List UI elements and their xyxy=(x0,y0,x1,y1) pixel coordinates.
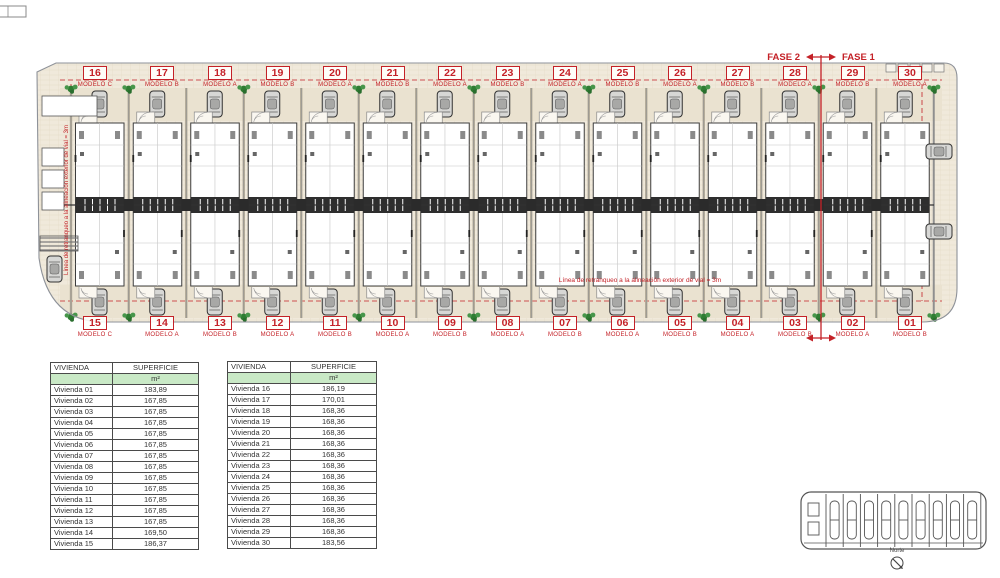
unit-label: 27MODELO B xyxy=(706,63,770,88)
unit-model: MODELO B xyxy=(188,332,252,338)
table-row: Vivienda 03167,85 xyxy=(51,407,199,418)
unit-number: 11 xyxy=(323,316,347,330)
vivienda-cell: Vivienda 28 xyxy=(228,516,291,527)
superficie-cell: 168,36 xyxy=(291,461,377,472)
unit-model: MODELO A xyxy=(130,332,194,338)
vivienda-cell: Vivienda 15 xyxy=(51,539,113,550)
table-row: Vivienda 01183,89 xyxy=(51,385,199,396)
unit-model: MODELO C xyxy=(63,82,127,88)
unit-model: MODELO B xyxy=(533,332,597,338)
unit-label: 06MODELO A xyxy=(591,313,655,338)
unit-model: MODELO A xyxy=(648,82,712,88)
vivienda-cell: Vivienda 06 xyxy=(51,440,113,451)
vivienda-cell: Vivienda 24 xyxy=(228,472,291,483)
unit-model: MODELO A xyxy=(533,82,597,88)
unit-number: 21 xyxy=(381,66,405,80)
unit-label: 29MODELO B xyxy=(821,63,885,88)
table-row: Vivienda 17170,01 xyxy=(228,395,377,406)
unit-number: 14 xyxy=(150,316,174,330)
unit-label: 25MODELO B xyxy=(591,63,655,88)
unit-number: 20 xyxy=(323,66,347,80)
unit-module xyxy=(761,88,815,318)
fase1-label: FASE 1 xyxy=(842,52,875,63)
unit-number: 18 xyxy=(208,66,232,80)
table-row: Vivienda 21168,36 xyxy=(228,439,377,450)
table-row: Vivienda 14169,50 xyxy=(51,528,199,539)
superficie-cell: 168,36 xyxy=(291,428,377,439)
unit-number: 15 xyxy=(83,316,107,330)
unit-model: MODELO A xyxy=(591,332,655,338)
vivienda-cell: Vivienda 03 xyxy=(51,407,113,418)
vivienda-cell: Vivienda 22 xyxy=(228,450,291,461)
unit-number: 17 xyxy=(150,66,174,80)
unit-number: 28 xyxy=(783,66,807,80)
vivienda-cell: Vivienda 13 xyxy=(51,517,113,528)
superficie-cell: 167,85 xyxy=(113,495,199,506)
superficie-cell: 169,50 xyxy=(113,528,199,539)
unit-model: MODELO A xyxy=(706,332,770,338)
unit-model: MODELO A xyxy=(476,332,540,338)
superficie-cell: 167,85 xyxy=(113,451,199,462)
superficie-cell: 168,36 xyxy=(291,406,377,417)
compass-label: Norte xyxy=(890,548,905,554)
unit-number: 06 xyxy=(611,316,635,330)
north-compass-icon: Norte xyxy=(890,548,905,569)
unit-label: 01MODELO B xyxy=(878,313,942,338)
superficie-cell: 168,36 xyxy=(291,417,377,428)
unit-module xyxy=(474,88,528,318)
unit-module xyxy=(71,88,125,318)
unit-module xyxy=(244,88,298,318)
table-subheader: m² xyxy=(291,373,377,384)
superficie-cell: 167,85 xyxy=(113,473,199,484)
superficie-cell: 167,85 xyxy=(113,396,199,407)
table-row: Vivienda 04167,85 xyxy=(51,418,199,429)
table-row: Vivienda 09167,85 xyxy=(51,473,199,484)
vivienda-cell: Vivienda 09 xyxy=(51,473,113,484)
superficie-cell: 168,36 xyxy=(291,505,377,516)
table-row: Vivienda 20168,36 xyxy=(228,428,377,439)
superficie-cell: 170,01 xyxy=(291,395,377,406)
unit-label: 08MODELO A xyxy=(476,313,540,338)
unit-label: 07MODELO B xyxy=(533,313,597,338)
unit-model: MODELO B xyxy=(763,332,827,338)
table-subheader xyxy=(228,373,291,384)
unit-number: 23 xyxy=(496,66,520,80)
table-row: Vivienda 27168,36 xyxy=(228,505,377,516)
house-modules xyxy=(71,88,934,318)
vivienda-cell: Vivienda 23 xyxy=(228,461,291,472)
superficie-cell: 167,85 xyxy=(113,517,199,528)
vivienda-cell: Vivienda 26 xyxy=(228,494,291,505)
table-row: Vivienda 11167,85 xyxy=(51,495,199,506)
unit-number: 29 xyxy=(841,66,865,80)
unit-label: 10MODELO A xyxy=(361,313,425,338)
unit-number: 24 xyxy=(553,66,577,80)
unit-label: 23MODELO B xyxy=(476,63,540,88)
key-plan xyxy=(801,492,986,549)
unit-model: MODELO A xyxy=(821,332,885,338)
unit-model: MODELO B xyxy=(878,332,942,338)
unit-number: 04 xyxy=(726,316,750,330)
unit-model: MODELO A xyxy=(763,82,827,88)
superficie-cell: 167,85 xyxy=(113,440,199,451)
unit-number: 30 xyxy=(898,66,922,80)
superficie-cell: 167,85 xyxy=(113,407,199,418)
unit-label: 18MODELO A xyxy=(188,63,252,88)
surface-table-right: VIVIENDASUPERFICIEm²Vivienda 16186,19Viv… xyxy=(227,361,377,549)
vivienda-cell: Vivienda 20 xyxy=(228,428,291,439)
unit-number: 12 xyxy=(266,316,290,330)
setback-note-vertical: Línea de retranqueo a la alineación exte… xyxy=(64,125,70,275)
surface-table-left: VIVIENDASUPERFICIEm²Vivienda 01183,89Viv… xyxy=(50,362,199,550)
superficie-cell: 168,36 xyxy=(291,527,377,538)
table-header: SUPERFICIE xyxy=(291,362,377,373)
superficie-cell: 167,85 xyxy=(113,462,199,473)
unit-model: MODELO B xyxy=(361,82,425,88)
vivienda-cell: Vivienda 21 xyxy=(228,439,291,450)
unit-model: MODELO B xyxy=(591,82,655,88)
vivienda-cell: Vivienda 08 xyxy=(51,462,113,473)
vivienda-cell: Vivienda 14 xyxy=(51,528,113,539)
superficie-cell: 183,89 xyxy=(113,385,199,396)
unit-label: 17MODELO B xyxy=(130,63,194,88)
vivienda-cell: Vivienda 07 xyxy=(51,451,113,462)
unit-module xyxy=(129,88,183,318)
unit-model: MODELO B xyxy=(130,82,194,88)
fase2-label: FASE 2 xyxy=(767,52,800,63)
unit-model: MODELO A xyxy=(361,332,425,338)
unit-model: MODELO A xyxy=(878,82,942,88)
table-subheader: m² xyxy=(113,374,199,385)
unit-model: MODELO A xyxy=(303,82,367,88)
unit-module xyxy=(186,88,240,318)
unit-model: MODELO B xyxy=(246,82,310,88)
unit-label: 11MODELO B xyxy=(303,313,367,338)
unit-number: 13 xyxy=(208,316,232,330)
table-row: Vivienda 07167,85 xyxy=(51,451,199,462)
unit-label: 30MODELO A xyxy=(878,63,942,88)
unit-label: 15MODELO C xyxy=(63,313,127,338)
table-row: Vivienda 15186,37 xyxy=(51,539,199,550)
superficie-cell: 168,36 xyxy=(291,494,377,505)
table-row: Vivienda 29168,36 xyxy=(228,527,377,538)
unit-number: 22 xyxy=(438,66,462,80)
setback-note: Línea de retranqueo a la alineación exte… xyxy=(559,277,721,284)
table-row: Vivienda 23168,36 xyxy=(228,461,377,472)
table-row: Vivienda 30183,56 xyxy=(228,538,377,549)
vivienda-cell: Vivienda 29 xyxy=(228,527,291,538)
unit-model: MODELO A xyxy=(188,82,252,88)
table-subheader xyxy=(51,374,113,385)
unit-model: MODELO A xyxy=(418,82,482,88)
unit-model: MODELO C xyxy=(63,332,127,338)
vivienda-cell: Vivienda 18 xyxy=(228,406,291,417)
unit-number: 26 xyxy=(668,66,692,80)
vivienda-cell: Vivienda 11 xyxy=(51,495,113,506)
superficie-cell: 186,37 xyxy=(113,539,199,550)
vivienda-cell: Vivienda 05 xyxy=(51,429,113,440)
table-row: Vivienda 12167,85 xyxy=(51,506,199,517)
vivienda-cell: Vivienda 01 xyxy=(51,385,113,396)
vivienda-cell: Vivienda 10 xyxy=(51,484,113,495)
superficie-cell: 183,56 xyxy=(291,538,377,549)
unit-number: 19 xyxy=(266,66,290,80)
unit-model: MODELO A xyxy=(246,332,310,338)
unit-label: 13MODELO B xyxy=(188,313,252,338)
unit-label: 22MODELO A xyxy=(418,63,482,88)
unit-module xyxy=(359,88,413,318)
unit-model: MODELO B xyxy=(476,82,540,88)
vivienda-cell: Vivienda 27 xyxy=(228,505,291,516)
superficie-cell: 167,85 xyxy=(113,429,199,440)
unit-model: MODELO B xyxy=(706,82,770,88)
table-header: VIVIENDA xyxy=(51,363,113,374)
vivienda-cell: Vivienda 04 xyxy=(51,418,113,429)
unit-label: 14MODELO A xyxy=(130,313,194,338)
superficie-cell: 168,36 xyxy=(291,439,377,450)
table-row: Vivienda 05167,85 xyxy=(51,429,199,440)
unit-number: 16 xyxy=(83,66,107,80)
unit-number: 07 xyxy=(553,316,577,330)
table-row: Vivienda 16186,19 xyxy=(228,384,377,395)
unit-label: 12MODELO A xyxy=(246,313,310,338)
unit-number: 03 xyxy=(783,316,807,330)
table-header: SUPERFICIE xyxy=(113,363,199,374)
unit-module xyxy=(416,88,470,318)
table-row: Vivienda 26168,36 xyxy=(228,494,377,505)
table-row: Vivienda 19168,36 xyxy=(228,417,377,428)
unit-module xyxy=(876,88,930,318)
vivienda-cell: Vivienda 25 xyxy=(228,483,291,494)
unit-label: 21MODELO B xyxy=(361,63,425,88)
unit-label: 02MODELO A xyxy=(821,313,885,338)
unit-model: MODELO B xyxy=(303,332,367,338)
table-row: Vivienda 24168,36 xyxy=(228,472,377,483)
vivienda-cell: Vivienda 02 xyxy=(51,396,113,407)
unit-label: 16MODELO C xyxy=(63,63,127,88)
unit-label: 09MODELO B xyxy=(418,313,482,338)
unit-module xyxy=(301,88,355,318)
unit-module xyxy=(819,88,873,318)
superficie-cell: 168,36 xyxy=(291,483,377,494)
unit-number: 09 xyxy=(438,316,462,330)
table-header: VIVIENDA xyxy=(228,362,291,373)
unit-label: 05MODELO B xyxy=(648,313,712,338)
site-plan-sheet: FASE 2 FASE 1 Línea de retranqueo a la a… xyxy=(0,0,1000,578)
unit-label: 20MODELO A xyxy=(303,63,367,88)
superficie-cell: 167,85 xyxy=(113,418,199,429)
table-row: Vivienda 18168,36 xyxy=(228,406,377,417)
unit-model: MODELO B xyxy=(418,332,482,338)
table-row: Vivienda 08167,85 xyxy=(51,462,199,473)
superficie-cell: 167,85 xyxy=(113,506,199,517)
unit-model: MODELO B xyxy=(648,332,712,338)
superficie-cell: 168,36 xyxy=(291,450,377,461)
vivienda-cell: Vivienda 19 xyxy=(228,417,291,428)
unit-number: 25 xyxy=(611,66,635,80)
unit-label: 24MODELO A xyxy=(533,63,597,88)
unit-label: 03MODELO B xyxy=(763,313,827,338)
unit-number: 08 xyxy=(496,316,520,330)
vivienda-cell: Vivienda 30 xyxy=(228,538,291,549)
unit-number: 27 xyxy=(726,66,750,80)
unit-number: 10 xyxy=(381,316,405,330)
table-row: Vivienda 06167,85 xyxy=(51,440,199,451)
unit-label: 19MODELO B xyxy=(246,63,310,88)
unit-number: 02 xyxy=(841,316,865,330)
superficie-cell: 186,19 xyxy=(291,384,377,395)
sheet-frame-corner xyxy=(0,6,26,17)
unit-label: 26MODELO A xyxy=(648,63,712,88)
unit-label: 28MODELO A xyxy=(763,63,827,88)
unit-number: 01 xyxy=(898,316,922,330)
unit-label: 04MODELO A xyxy=(706,313,770,338)
vivienda-cell: Vivienda 17 xyxy=(228,395,291,406)
table-row: Vivienda 02167,85 xyxy=(51,396,199,407)
table-row: Vivienda 28168,36 xyxy=(228,516,377,527)
vivienda-cell: Vivienda 16 xyxy=(228,384,291,395)
table-row: Vivienda 22168,36 xyxy=(228,450,377,461)
vivienda-cell: Vivienda 12 xyxy=(51,506,113,517)
table-row: Vivienda 13167,85 xyxy=(51,517,199,528)
superficie-cell: 168,36 xyxy=(291,516,377,527)
unit-number: 05 xyxy=(668,316,692,330)
unit-model: MODELO B xyxy=(821,82,885,88)
superficie-cell: 168,36 xyxy=(291,472,377,483)
table-row: Vivienda 25168,36 xyxy=(228,483,377,494)
table-row: Vivienda 10167,85 xyxy=(51,484,199,495)
superficie-cell: 167,85 xyxy=(113,484,199,495)
